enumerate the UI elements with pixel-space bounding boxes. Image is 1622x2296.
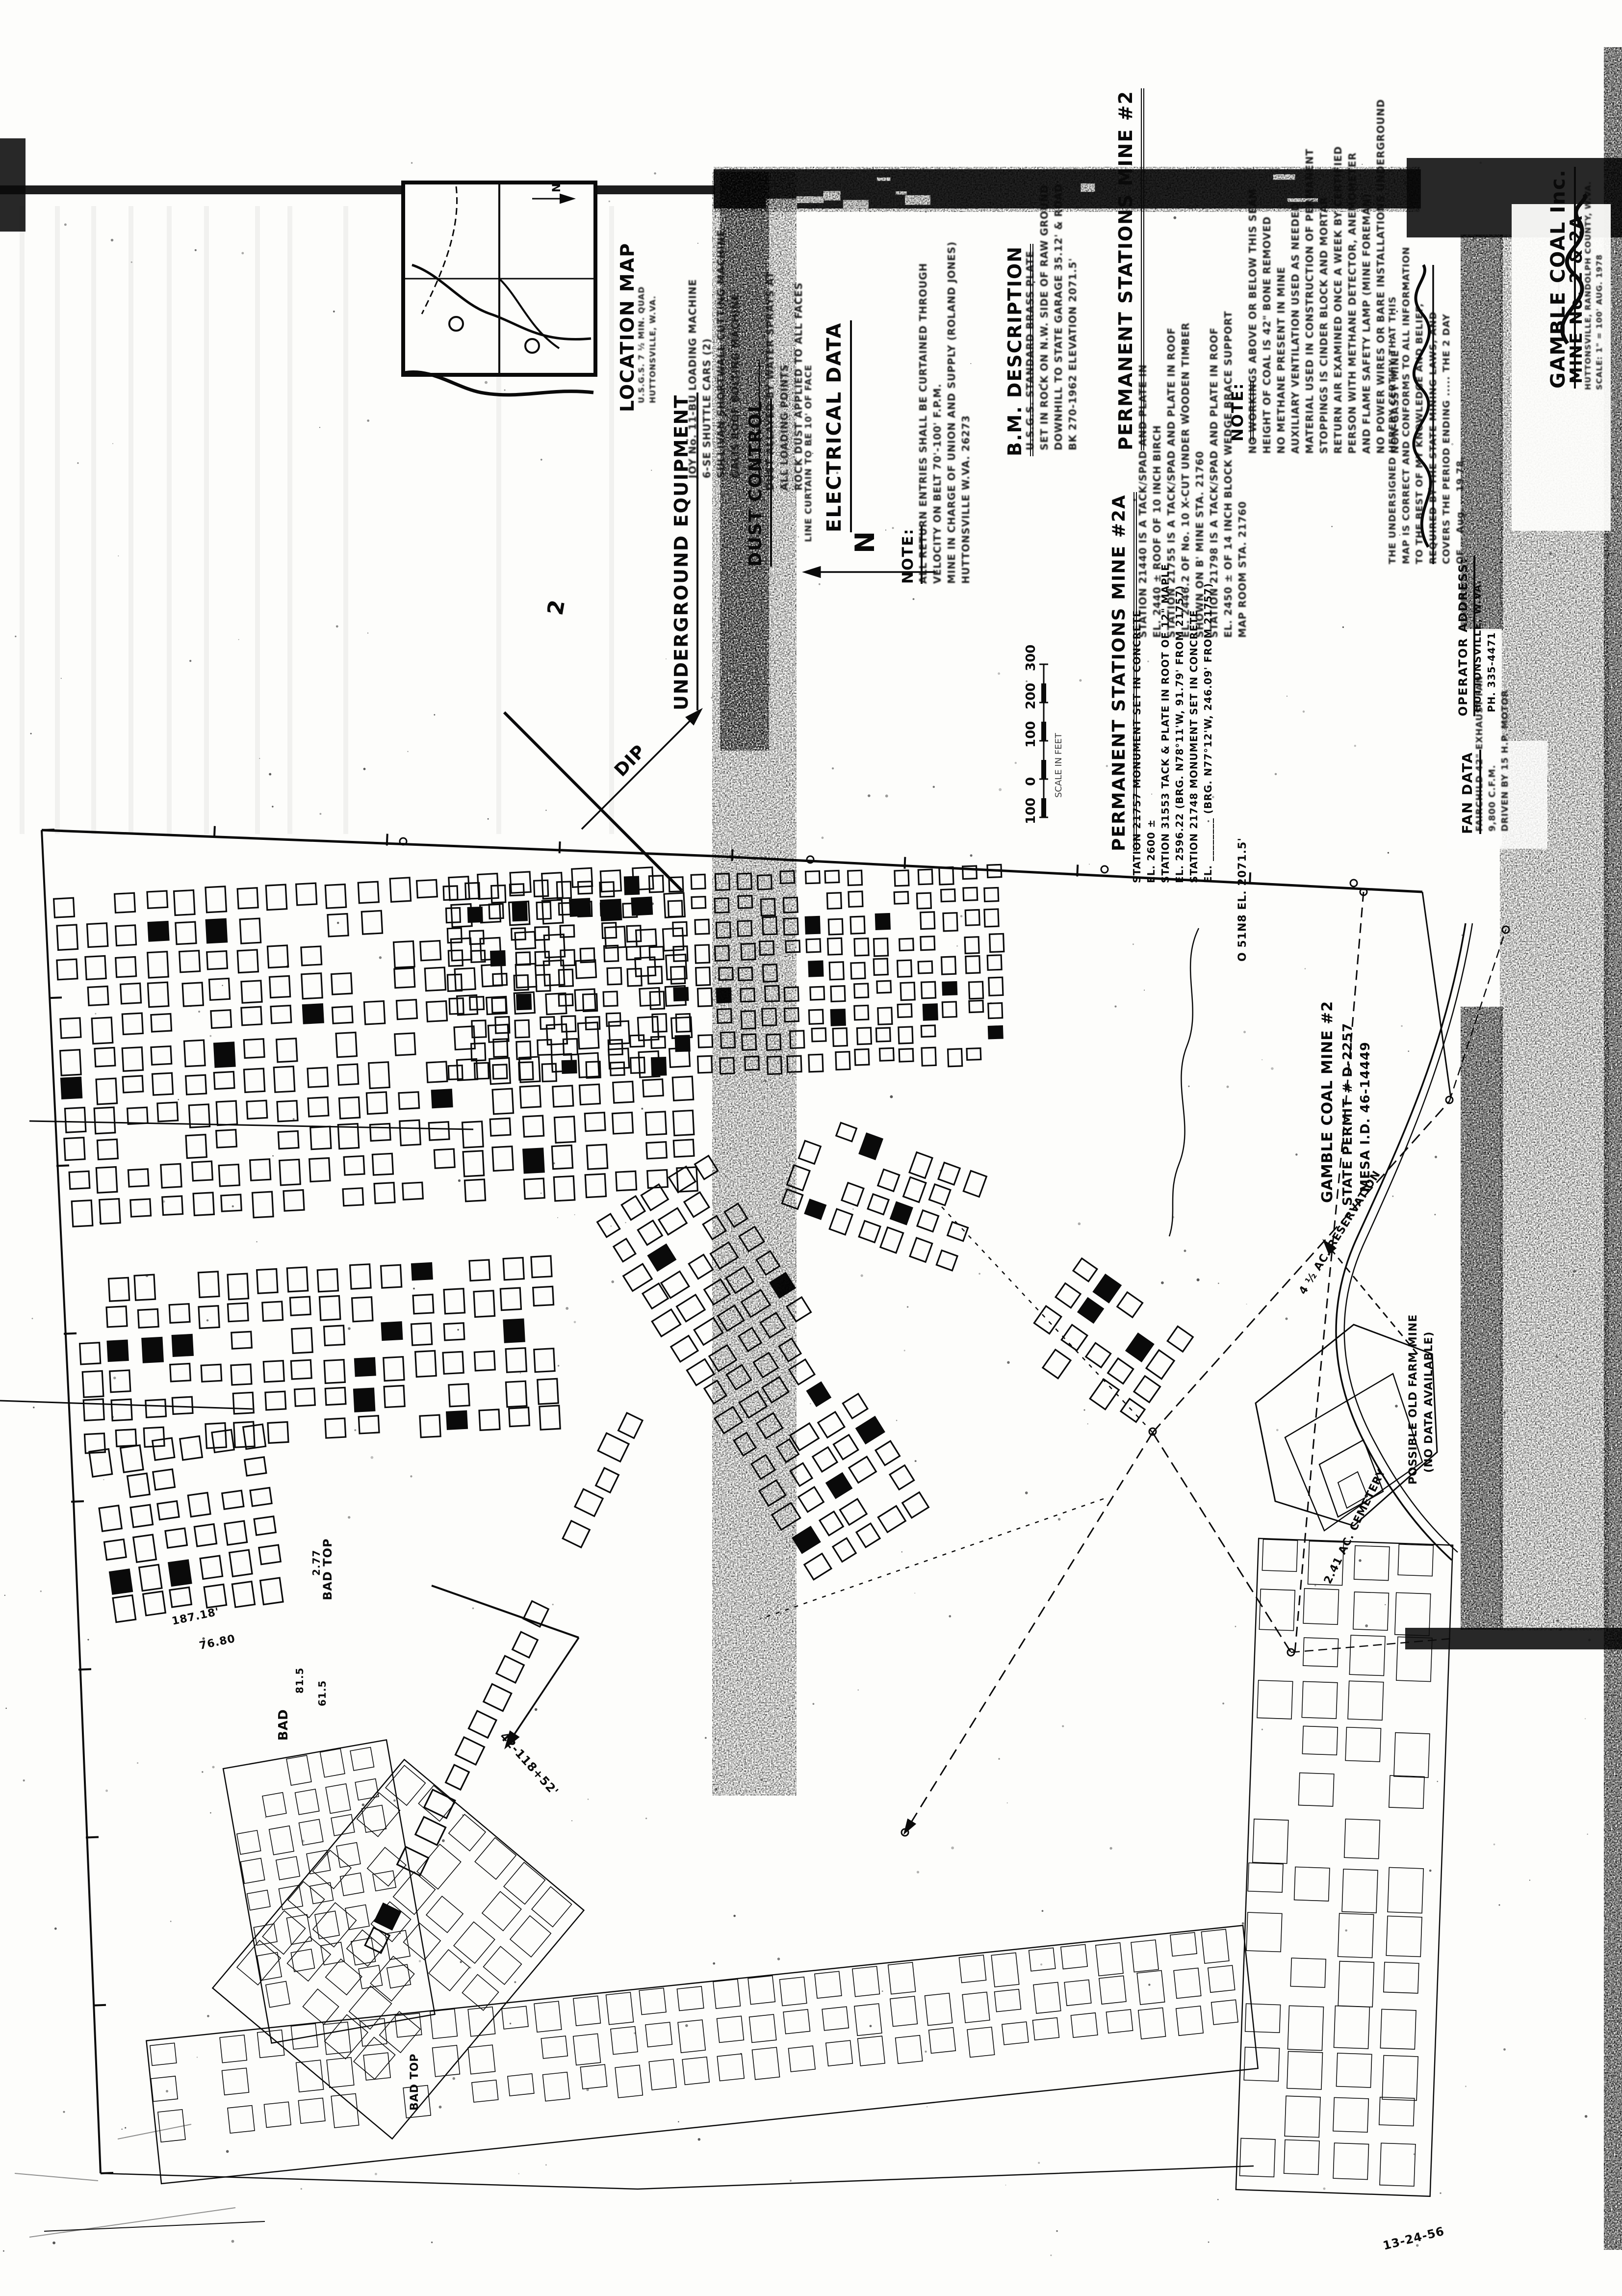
scanned-mine-map-sheet: N1000100200300SCALE IN FEETNDIP2GAMBLE C…: [0, 0, 1622, 2296]
certification-line: REQUIRED BY THE STATE MINING LAWS, AND: [1427, 246, 1441, 564]
note-1-list-line: ALL RETURN ENTRIES SHALL BE CURTAINED TH…: [916, 241, 930, 584]
fan-data-list-line: DRIVEN BY 15 H.P. MOTOR: [1499, 676, 1512, 832]
certification: THE UNDERSIGNED HEREBY CERTIFY THAT THIS…: [1386, 246, 1467, 564]
permanent-stations-2-list-line: EL. 2450 ± OF 14 INCH BLOCK WEDGE BRACE …: [1221, 311, 1236, 638]
note-2-list-line: MATERIAL USED IN CONSTRUCTION OF PERMANE…: [1303, 99, 1317, 454]
fan-data-list-line: 9,800 C.F.M.: [1486, 676, 1499, 832]
certification-line: COVERS THE PERIOD ENDING ..... THE 2 DAY: [1440, 246, 1454, 564]
underground-equipment-list-line: GALIS ROOF BOLTING MACHINE: [728, 230, 743, 478]
certification-line: MAP IS CORRECT AND CONFORMS TO ALL INFOR…: [1400, 246, 1414, 564]
dust-control-list-line: DUST ALLAYED BY WATER SPRAYS AT: [763, 271, 777, 491]
note-2-list-line: PERSON WITH METHANE DETECTOR, ANEMOMETER: [1345, 99, 1360, 454]
location-map-sub-line: HUTTONSVILLE, W.VA.: [647, 286, 658, 403]
location-map-sub: U.S.G.S. 7 ½ MIN. QUADHUTTONSVILLE, W.VA…: [636, 286, 658, 403]
electrical-data-heading: ELECTRICAL DATA: [820, 320, 852, 532]
note-2-list-line: HEIGHT OF COAL IS 42" BONE REMOVED: [1260, 99, 1274, 454]
permanent-stations-2a-list-line: EL. 2600 ±: [1144, 564, 1159, 883]
permanent-stations-2a-list-line: STATION 31553 TACK & PLATE IN ROOT OF 12…: [1159, 564, 1173, 883]
title-sub-line: HUTTONSVILLE, RANDOLPH COUNTY, W.VA.: [1582, 181, 1594, 390]
bm-description-list-line: SET IN ROCK ON N.W. SIDE OF RAW GROUND: [1037, 183, 1052, 450]
permanent-stations-2a-list-line: STATION 21748 MONUMENT SET IN CONCRETE: [1187, 564, 1201, 883]
note-1-list: ALL RETURN ENTRIES SHALL BE CURTAINED TH…: [916, 241, 973, 584]
bm-description-list: U.S.G.S. STANDARD BRASS PLATESET IN ROCK…: [1023, 183, 1080, 450]
underground-equipment-list-line: SULLIVAN SHORTWALL CUTTING MACHINE: [714, 230, 728, 478]
line-curtain-note-line: LINE CURTAIN TO BE 10' OF FACE: [802, 365, 815, 542]
certification-line: TO THE BEST OF MY KNOWLEDGE AND BELIEF,: [1413, 246, 1427, 564]
title-sub: HUTTONSVILLE, RANDOLPH COUNTY, W.VA.SCAL…: [1582, 181, 1605, 390]
rotated-text-columns: UNDERGROUND EQUIPMENTJOY No. 11-BU LOADI…: [0, 0, 1622, 2296]
bm-description-list-line: BK 270-1962 ELEVATION 2071.5': [1066, 183, 1080, 450]
electrical-data-heading-text: ELECTRICAL DATA: [820, 320, 852, 532]
dust-control-list: DUST ALLAYED BY WATER SPRAYS ATALL LOADI…: [763, 271, 806, 491]
certification-line: THE UNDERSIGNED HEREBY CERTIFY THAT THIS: [1386, 246, 1400, 564]
note-1-list-line: VELOCITY ON BELT 70'-100' F.P.M.: [930, 241, 945, 584]
underground-equipment-list-line: 6-SE SHUTTLE CARS (2): [700, 230, 714, 478]
fan-data-list-line: FAIRCHILD 42" EXHAUST FAN: [1473, 676, 1486, 832]
fan-data-list: FAIRCHILD 42" EXHAUST FAN9,800 C.F.M.DRI…: [1473, 676, 1512, 832]
note-2-list-line: RETURN AIR EXAMINED ONCE A WEEK BY CERTI…: [1331, 99, 1345, 454]
note-2-list-line: NO METHANE PRESENT IN MINE: [1274, 99, 1288, 454]
line-curtain-note: LINE CURTAIN TO BE 10' OF FACE: [802, 365, 815, 542]
permanent-stations-2a-list-line: EL. ________ (BRG. N77°12'W, 246.09' FRO…: [1201, 564, 1215, 883]
underground-equipment-list: JOY No. 11-BU LOADING MACHINE6-SE SHUTTL…: [686, 230, 743, 478]
underground-equipment-list-line: JOY No. 11-BU LOADING MACHINE: [686, 230, 700, 478]
dust-control-list-line: ALL LOADING POINTS: [777, 271, 792, 491]
title-sub-line: SCALE: 1" = 100' AUG. 1978: [1594, 181, 1605, 390]
note-2-list-line: AND FLAME SAFETY LAMP (MINE FOREMAN): [1360, 99, 1374, 454]
note-2-list-line: STOPPINGS IS CINDER BLOCK AND MORTAR: [1317, 99, 1331, 454]
permanent-stations-2a-list-line: STATION 21757 MONUMENT SET IN CONCRETE: [1130, 564, 1144, 883]
permanent-stations-2a-list: STATION 21757 MONUMENT SET IN CONCRETE E…: [1130, 564, 1215, 883]
note-2-list-line: NO WORKINGS ABOVE OR BELOW THIS SEAM: [1246, 99, 1260, 454]
permanent-stations-2a-list-line: EL. 2596.22 (BRG. N78°11'W, 91.79' FROM …: [1173, 564, 1187, 883]
note-2-list-line: AUXILIARY VENTILATION USED AS NEEDED: [1288, 99, 1303, 454]
note-2-list: NO WORKINGS ABOVE OR BELOW THIS SEAMHEIG…: [1246, 99, 1402, 454]
bm-description-list-line: U.S.G.S. STANDARD BRASS PLATE: [1023, 183, 1037, 450]
note-1-list-line: HUTTONSVILLE W.VA. 26273: [959, 241, 973, 584]
note-1-list-line: MINE IN CHARGE OF UNION AND SUPPLY (ROLA…: [945, 241, 959, 584]
certification-line: OF .. Aug. .. 19 78.: [1454, 246, 1468, 564]
bm-description-list-line: DOWNHILL TO STATE GARAGE 35.12' & ROAD: [1052, 183, 1066, 450]
location-map-sub-line: U.S.G.S. 7 ½ MIN. QUAD: [636, 286, 647, 403]
